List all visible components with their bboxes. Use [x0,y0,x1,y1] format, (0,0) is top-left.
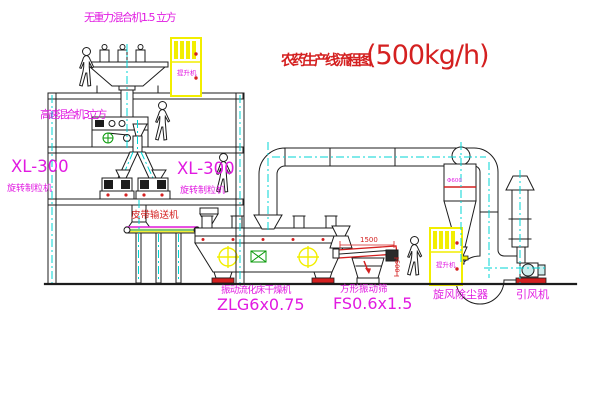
bucket-elevator-1 [171,38,201,96]
label-granulator-right-name: 旋转制粒机 [180,187,225,196]
person-floor2 [156,102,170,141]
label-fan: 引风机 [516,289,549,300]
label-granulator-left-name: 旋转制粒机 [7,185,52,194]
diagram-title-capacity: (500kg/h) [366,42,489,69]
bucket-elevator-2 [430,228,462,285]
granulator-left [100,170,134,199]
label-cyclone: 旋风除尘器 [433,289,488,300]
dim-screen-length: 1500 [360,237,378,244]
dim-screen-height: 500 [394,260,401,272]
belt-conveyor [124,227,200,283]
flow-diagram-canvas: 农药生产线流程图 (500kg/h) 无重力混合机1.5 立方 高速混合机3立方… [0,0,600,403]
label-screen-model: FS0.6x1.5 [333,296,412,312]
high-speed-mixer [92,117,148,152]
label-dryer-model: ZLG6x0.75 [217,297,305,313]
label-elevator-1: 提升机 [177,70,197,77]
label-high-speed-mixer: 高速混合机3立方 [40,109,105,120]
diagram-title: 农药生产线流程图 [281,54,369,68]
vibrating-screen [330,226,399,283]
person-ground [408,237,422,276]
label-gravity-mixer: 无重力混合机1.5 立方 [84,12,175,23]
label-granulator-right-model: XL-300 [177,161,235,178]
label-elevator-2: 提升机 [436,262,456,269]
dim-cyclone: Φ600 [447,179,462,185]
label-belt-conveyor: 皮带输送机 [131,211,179,221]
label-granulator-left-model: XL-300 [11,159,69,176]
person-roof [80,48,94,87]
